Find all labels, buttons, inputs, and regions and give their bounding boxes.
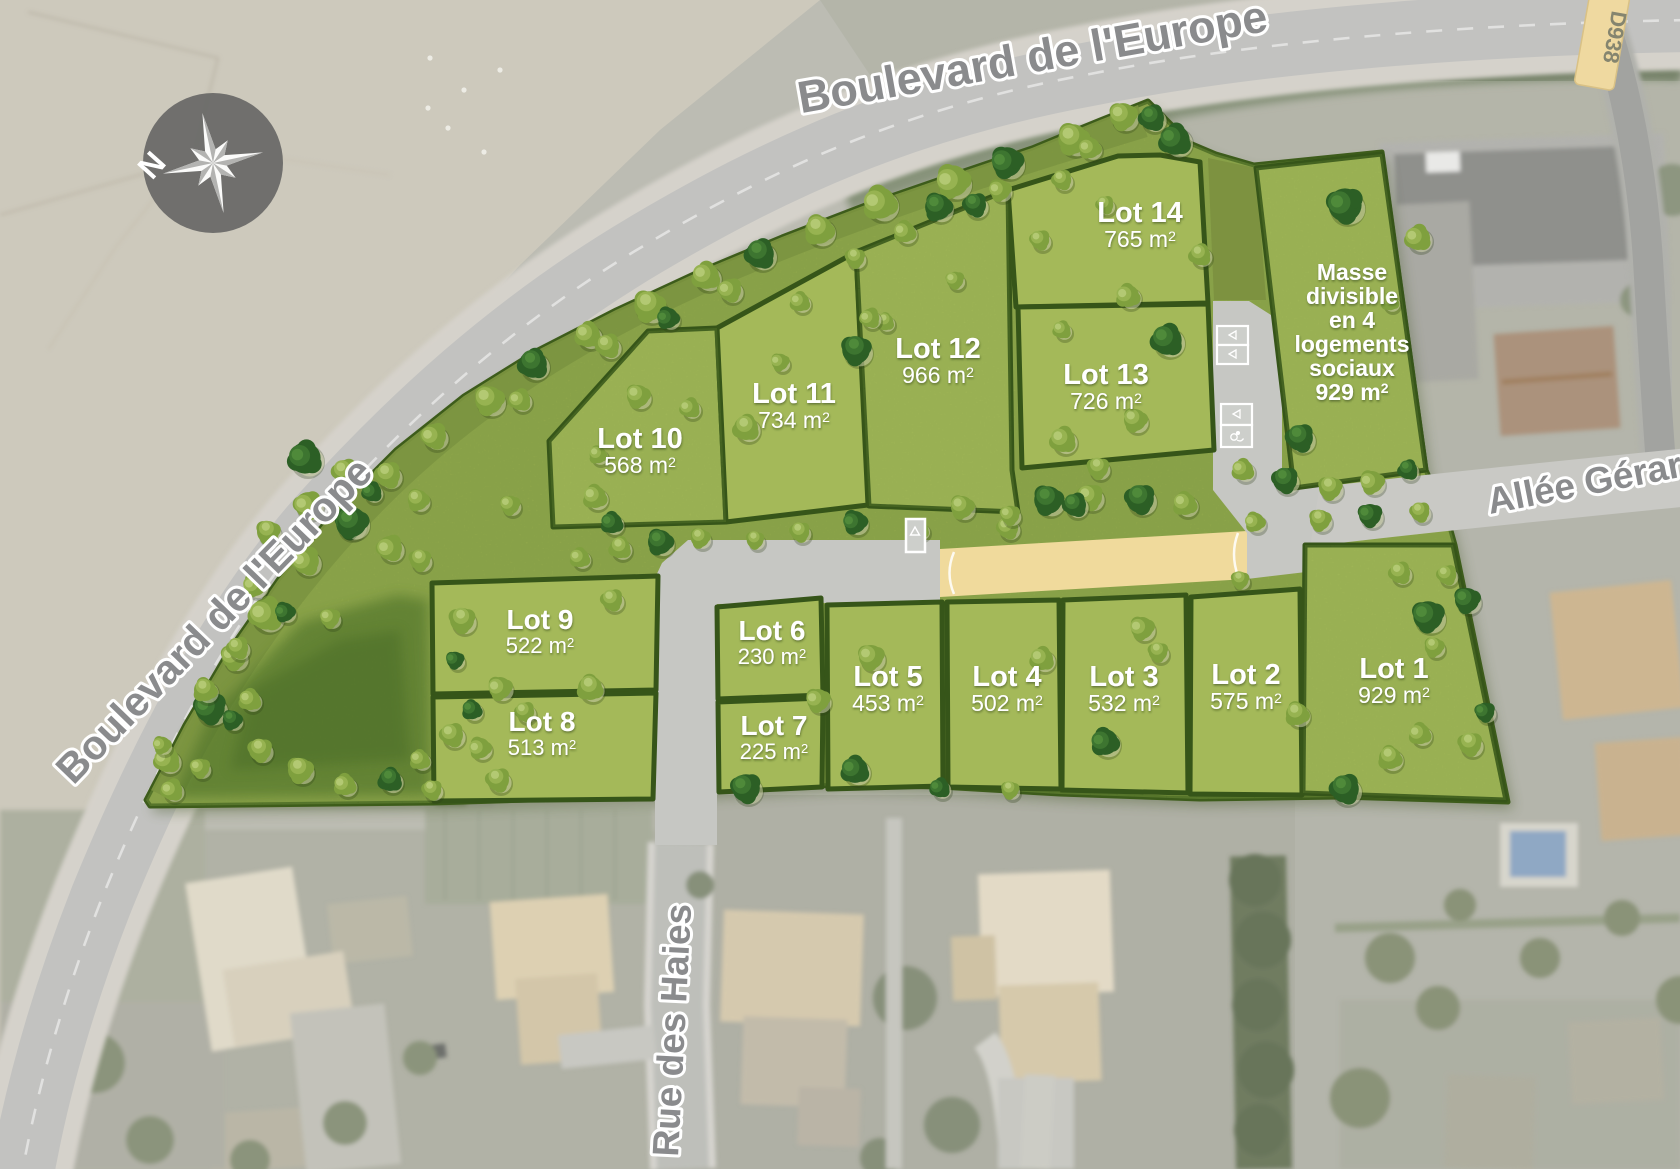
svg-text:522 m2: 522 m2: [506, 633, 574, 658]
svg-text:Lot 11: Lot 11: [752, 378, 836, 410]
svg-text:Lot 12: Lot 12: [895, 333, 980, 365]
svg-text:568 m2: 568 m2: [604, 452, 676, 478]
svg-text:575 m2: 575 m2: [1210, 688, 1282, 714]
svg-text:966 m2: 966 m2: [902, 362, 974, 388]
svg-text:Lot 8: Lot 8: [509, 706, 576, 737]
svg-text:502 m2: 502 m2: [971, 690, 1043, 716]
svg-text:734 m2: 734 m2: [758, 407, 830, 433]
svg-text:Lot 5: Lot 5: [853, 661, 922, 693]
svg-text:Masse: Masse: [1317, 259, 1387, 285]
svg-text:Lot 14: Lot 14: [1097, 197, 1182, 229]
svg-text:765 m2: 765 m2: [1104, 226, 1176, 252]
svg-text:divisible: divisible: [1306, 283, 1398, 309]
svg-text:Lot 2: Lot 2: [1211, 659, 1280, 691]
svg-text:Lot 9: Lot 9: [507, 604, 574, 635]
svg-text:Lot 13: Lot 13: [1063, 359, 1148, 391]
svg-text:513 m2: 513 m2: [508, 735, 576, 760]
svg-text:Lot 7: Lot 7: [741, 710, 808, 741]
svg-text:453 m2: 453 m2: [852, 690, 924, 716]
svg-text:225 m2: 225 m2: [740, 739, 808, 764]
svg-text:Lot 6: Lot 6: [739, 615, 806, 646]
svg-text:532 m2: 532 m2: [1088, 690, 1160, 716]
svg-text:sociaux: sociaux: [1309, 355, 1395, 381]
svg-text:Lot 4: Lot 4: [972, 661, 1041, 693]
svg-text:en 4: en 4: [1329, 307, 1375, 333]
svg-text:Lot 1: Lot 1: [1359, 653, 1428, 685]
svg-text:929 m2: 929 m2: [1315, 379, 1388, 405]
svg-text:logements: logements: [1294, 331, 1409, 357]
svg-text:726 m2: 726 m2: [1070, 388, 1142, 414]
svg-text:929 m2: 929 m2: [1358, 682, 1430, 708]
svg-text:Lot 3: Lot 3: [1089, 661, 1158, 693]
svg-text:Lot 10: Lot 10: [597, 423, 682, 455]
svg-text:230 m2: 230 m2: [738, 644, 806, 669]
